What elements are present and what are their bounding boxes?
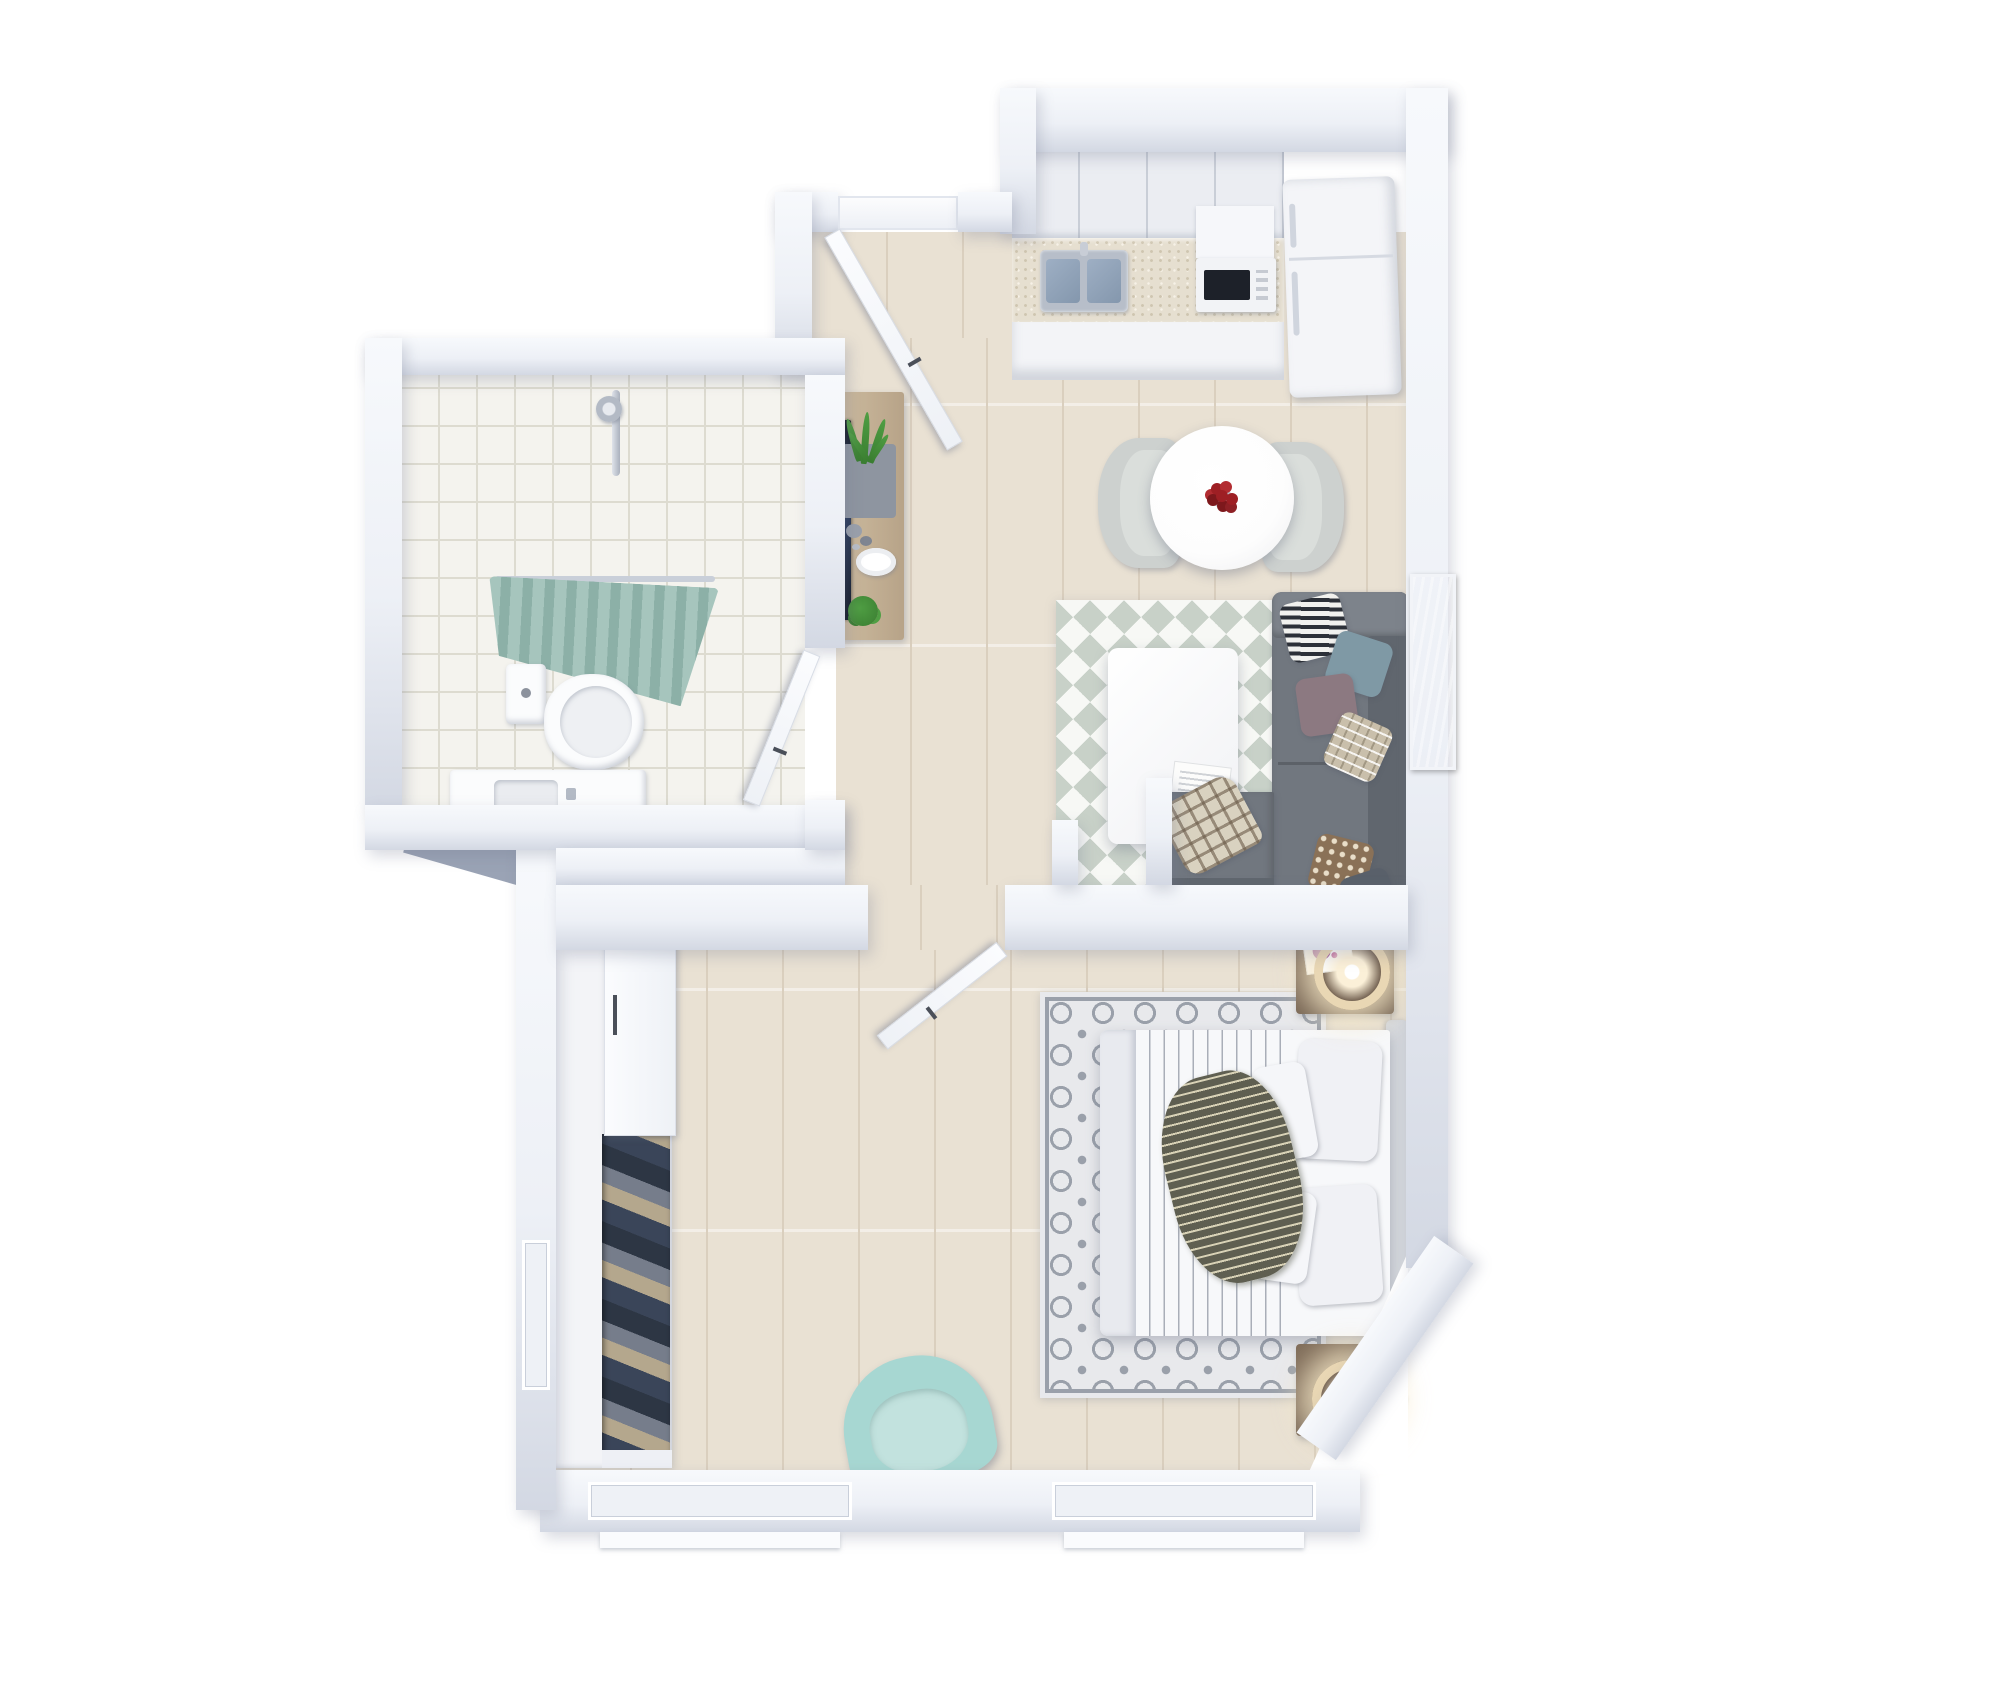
window-sill-1 [600,1532,840,1548]
bathroom-right-wall-lower [805,800,845,850]
blue-wall-art [1410,574,1456,770]
red-flowers [1216,490,1228,502]
decor-plate [856,548,896,576]
vanity-faucet-icon [566,788,576,800]
stone-vases [846,524,862,538]
bedroom-doorway-floor [846,885,1006,950]
microwave [1196,258,1276,312]
flush-button [521,688,531,698]
kitchen-sink [1040,250,1128,312]
bathroom-left-wall [365,338,402,808]
toilet-tank [506,664,546,724]
wardrobe-base [602,1450,672,1468]
entry-wall-right-segment [958,192,1012,232]
small-plant [848,596,878,626]
kitchen-top-wall [1005,88,1448,152]
grass-plant [842,444,896,518]
kitchen-base-cabinets [1012,322,1284,380]
floor-plan-render [0,0,2000,1700]
bathroom-right-wall-upper [805,375,845,648]
entry-threshold [838,196,958,230]
bathroom-bedroom-filler-wall [556,848,845,885]
toilet-seat [560,686,632,758]
shower-head-icon [596,396,622,422]
fridge-handle [1289,204,1297,248]
duvet-fold [1100,1030,1136,1336]
microwave-buttons [1256,270,1268,300]
bathroom-bottom-wall [365,805,845,850]
sink-basin-right [1087,259,1121,303]
toilet-bowl [544,674,644,770]
wall-stub-a [1052,820,1078,885]
oven-cabinet [1196,206,1274,258]
window-left [522,1240,550,1390]
wardrobe-handle [613,995,617,1035]
sink-basin-left [1046,259,1080,303]
wall-stub-b [1146,778,1172,885]
window-bottom-1 [588,1482,852,1520]
faucet-icon [1080,242,1088,256]
refrigerator [1282,176,1402,398]
window-bottom-2 [1052,1482,1316,1520]
window-sill-2 [1064,1532,1304,1548]
bathroom-top-wall [365,338,845,375]
microwave-window [1204,270,1250,300]
left-bedroom-wall [516,845,556,1510]
bedroom-top-wall-right [1005,885,1408,950]
fridge-handle-2 [1291,272,1299,336]
bedroom-top-wall-left [556,885,868,950]
dining-table [1150,426,1294,570]
fridge-door-split [1289,254,1393,261]
hanging-clothes [602,1134,670,1454]
